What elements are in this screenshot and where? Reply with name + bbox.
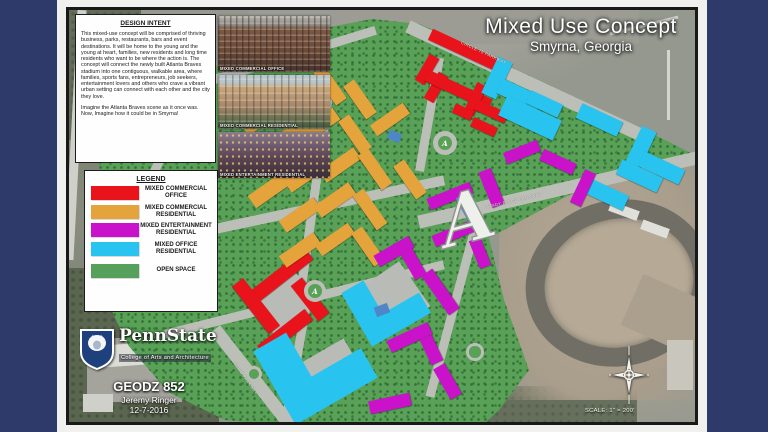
legend-label: MIXED COMMERCIAL OFFICE — [139, 186, 213, 199]
legend-row: MIXED COMMERCIAL OFFICE — [89, 186, 213, 200]
legend-swatch-orange — [91, 205, 139, 219]
roundabout: A — [433, 131, 457, 155]
braves-a-icon: A — [442, 140, 447, 147]
presentation-slide: A A A CIRCLE 75 PARKWAY WINDY RIDGE PARK… — [0, 0, 768, 432]
slide-subtitle: Smyrna, Georgia — [467, 39, 695, 54]
legend-heading: LEGEND — [89, 176, 213, 183]
rendering-commercial-office: MIXED COMMERCIAL OFFICE — [218, 16, 330, 72]
pennstate-shield-icon — [79, 328, 115, 370]
braves-logo-park: A — [424, 168, 508, 260]
legend-label: MIXED COMMERCIAL RESIDENTIAL — [139, 205, 213, 218]
legend-row: MIXED COMMERCIAL RESIDENTIAL — [89, 205, 213, 219]
legend-swatch-red — [91, 186, 139, 200]
design-intent-body: This mixed-use concept will be comprised… — [81, 31, 210, 100]
legend-label: MIXED OFFICE RESIDENTIAL — [139, 242, 213, 255]
legend-label: MIXED ENTERTAINMENT RESIDENTIAL — [139, 223, 213, 236]
branding-block: PennState College of Arts and Architectu… — [79, 328, 259, 415]
braves-a-icon: A — [312, 288, 317, 295]
author-name: Jeremy Ringer — [79, 395, 219, 405]
date: 12-7-2016 — [79, 405, 219, 415]
design-intent-box: DESIGN INTENT This mixed-use concept wil… — [75, 14, 216, 163]
legend-row: OPEN SPACE — [89, 264, 213, 278]
legend-swatch-cyan — [91, 242, 139, 256]
rendering-commercial-residential: MIXED COMMERCIAL RESIDENTIAL — [218, 75, 330, 129]
rendering-caption: MIXED COMMERCIAL OFFICE — [220, 66, 284, 71]
building-mixed-commercial-residential — [358, 149, 393, 191]
site-plan-map: A A A CIRCLE 75 PARKWAY WINDY RIDGE PARK… — [69, 10, 695, 422]
building-mixed-entertainment-residential — [503, 140, 541, 165]
design-intent-heading: DESIGN INTENT — [81, 20, 210, 27]
legend-row: MIXED ENTERTAINMENT RESIDENTIAL — [89, 223, 213, 237]
college-name: College of Arts and Architecture — [119, 354, 211, 362]
braves-a-letter: A — [424, 170, 504, 260]
rendering-caption: MIXED COMMERCIAL RESIDENTIAL — [220, 123, 298, 128]
scale-label: SCALE: 1" = 200' — [585, 408, 635, 414]
design-intent-tagline: Imagine the Atlanta Braves scene as it o… — [81, 105, 210, 118]
legend-label: OPEN SPACE — [139, 267, 213, 274]
building-mixed-commercial-office — [470, 117, 498, 137]
university-name: PennState — [119, 328, 217, 346]
map-frame: A A A CIRCLE 75 PARKWAY WINDY RIDGE PARK… — [66, 7, 698, 425]
legend-swatch-magenta — [91, 223, 139, 237]
legend-row: MIXED OFFICE RESIDENTIAL — [89, 242, 213, 256]
building-mixed-entertainment-residential — [368, 393, 412, 414]
roundabout — [466, 343, 484, 361]
slide-title-block: Mixed Use Concept Smyrna, Georgia — [467, 15, 695, 54]
slide-title: Mixed Use Concept — [467, 15, 695, 39]
building-mixed-commercial-residential — [315, 223, 355, 257]
course-code: GEODZ 852 — [79, 379, 219, 394]
roundabout: A — [304, 280, 326, 302]
building-mixed-entertainment-residential — [539, 149, 577, 175]
rendering-entertainment-residential: MIXED ENTERTAINMENT RESIDENTIAL — [218, 132, 330, 178]
rendering-caption: MIXED ENTERTAINMENT RESIDENTIAL — [220, 172, 305, 177]
compass-rose-icon — [609, 346, 649, 404]
legend-box: LEGEND MIXED COMMERCIAL OFFICE MIXED COM… — [84, 170, 218, 312]
legend-swatch-green — [91, 264, 139, 278]
